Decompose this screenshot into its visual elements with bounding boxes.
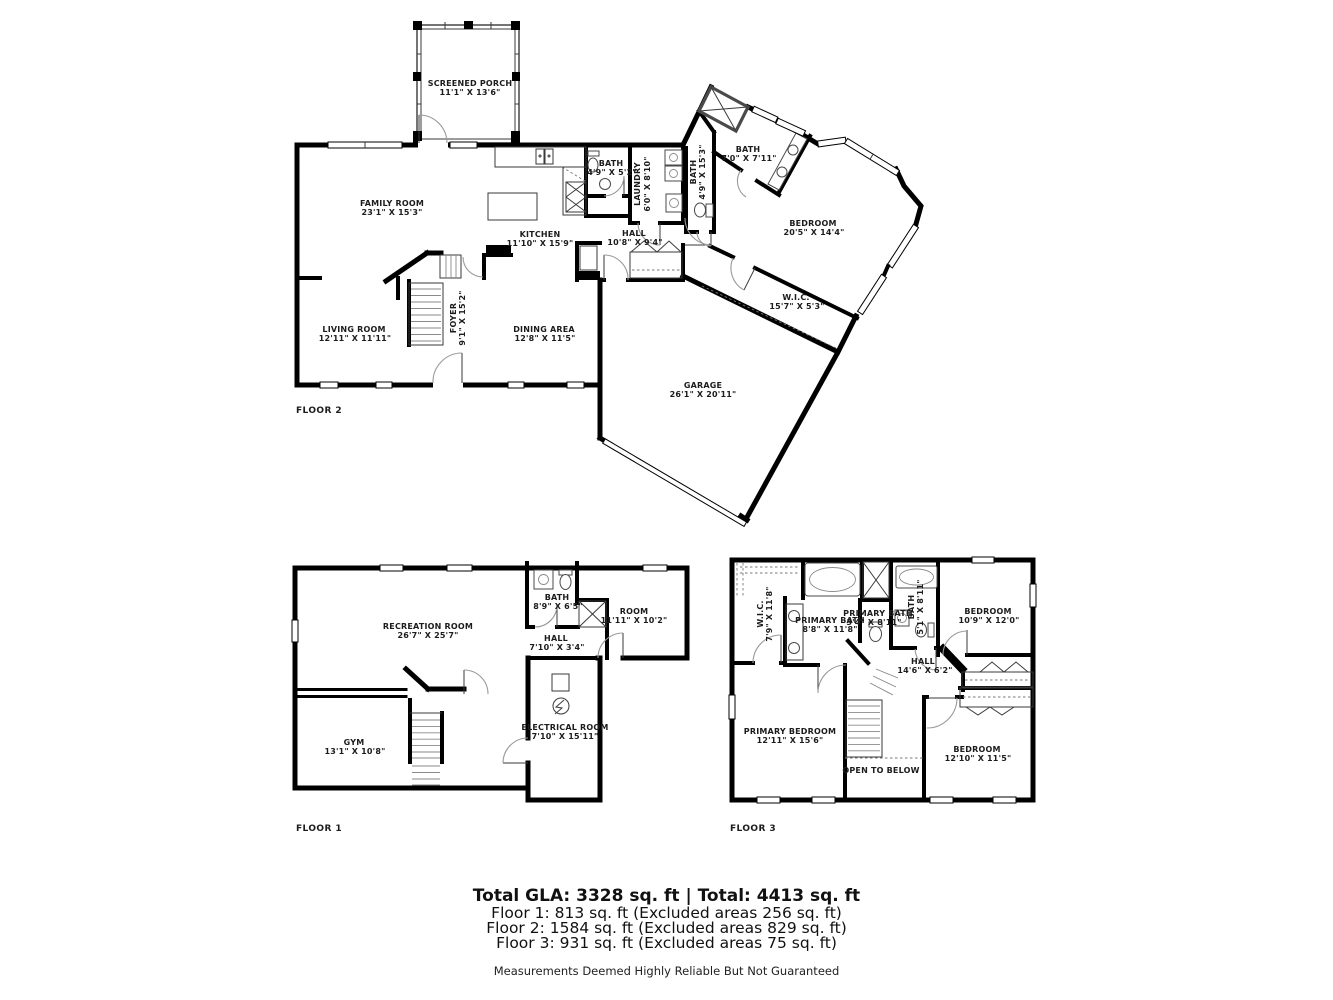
total-gla-line: Total GLA: 3328 sq. ft | Total: 4413 sq.…	[0, 886, 1333, 906]
floor1-outer-walls	[295, 568, 687, 800]
svg-text:FAMILY ROOM: FAMILY ROOM	[360, 199, 424, 208]
svg-text:9'1" X 15'2": 9'1" X 15'2"	[458, 290, 467, 345]
room-label-hall-f2: HALL 10'8" X 9'4"	[607, 229, 662, 247]
floor1-double-wall	[297, 690, 406, 697]
room-label-gym: GYM 13'1" X 10'8"	[325, 738, 386, 756]
svg-text:FOYER: FOYER	[449, 303, 458, 333]
room-label-wic-f3: W.I.C. 7'9" X 11'8"	[756, 586, 774, 641]
room-label-bedroom-se: BEDROOM 12'10" X 11'5"	[945, 745, 1012, 763]
svg-text:ELECTRICAL ROOM: ELECTRICAL ROOM	[521, 723, 608, 732]
svg-text:HALL: HALL	[911, 657, 935, 666]
svg-text:3'4" X 8'11": 3'4" X 8'11"	[846, 618, 901, 627]
svg-text:DINING AREA: DINING AREA	[513, 325, 575, 334]
room-label-wic-f2: W.I.C. 15'7" X 5'3"	[769, 293, 824, 311]
svg-text:KITCHEN: KITCHEN	[520, 230, 561, 239]
room-name: SCREENED PORCH	[428, 79, 513, 88]
svg-text:HALL: HALL	[544, 634, 568, 643]
floor-2-plan: SCREENED PORCH 11'1" X 13'6" FAMILY ROOM…	[296, 21, 921, 526]
room-label-bedroom-f2: BEDROOM 20'5" X 14'4"	[784, 219, 845, 237]
room-label-bath-strip: BATH 4'9" X 15'3"	[689, 144, 707, 199]
room-label-garage: GARAGE 26'1" X 20'11"	[670, 381, 737, 399]
room-label-recreation-room: RECREATION ROOM 26'7" X 25'7"	[383, 622, 473, 640]
svg-text:12'8" X 11'5": 12'8" X 11'5"	[515, 334, 576, 343]
svg-text:13'1" X 10'8": 13'1" X 10'8"	[325, 747, 386, 756]
room-label-hall-f1: HALL 7'10" X 3'4"	[529, 634, 584, 652]
room-label-family-room: FAMILY ROOM 23'1" X 15'3"	[360, 199, 424, 217]
svg-text:PRIMARY BATH: PRIMARY BATH	[843, 609, 913, 618]
room-label-dining-area: DINING AREA 12'8" X 11'5"	[513, 325, 575, 343]
room-label-bath-upper: BATH 7'0" X 7'11"	[721, 145, 776, 163]
svg-text:LIVING ROOM: LIVING ROOM	[322, 325, 385, 334]
floor-3-plan: W.I.C. 7'9" X 11'8" PRIMARY BATH 8'8" X …	[729, 557, 1036, 834]
svg-text:ROOM: ROOM	[620, 607, 649, 616]
room-label-laundry: LAUNDRY 6'0" X 8'10"	[633, 156, 652, 211]
floor-2-label: FLOOR 2	[296, 406, 342, 416]
floor3-area-line: Floor 3: 931 sq. ft (Excluded areas 75 s…	[0, 936, 1333, 951]
svg-text:RECREATION ROOM: RECREATION ROOM	[383, 622, 473, 631]
svg-text:7'9" X 11'8": 7'9" X 11'8"	[765, 586, 774, 641]
room-label-hall-f3: HALL 14'6" X 6'2"	[897, 657, 952, 675]
svg-text:LAUNDRY: LAUNDRY	[633, 162, 642, 206]
svg-text:BATH: BATH	[907, 595, 916, 620]
svg-text:5'1" X 8'11": 5'1" X 8'11"	[916, 579, 925, 634]
svg-text:6'0" X 8'10": 6'0" X 8'10"	[643, 156, 652, 211]
svg-text:4'9" X 5'2": 4'9" X 5'2"	[587, 168, 636, 177]
disclaimer-line: Measurements Deemed Highly Reliable But …	[0, 964, 1333, 978]
room-label-living-room: LIVING ROOM 12'11" X 11'11"	[319, 325, 392, 343]
floor-1-label: FLOOR 1	[296, 824, 342, 834]
svg-text:BATH: BATH	[545, 593, 570, 602]
svg-text:GARAGE: GARAGE	[684, 381, 722, 390]
svg-text:BATH: BATH	[689, 160, 698, 185]
room-label-room-f1: ROOM 11'11" X 10'2"	[601, 607, 668, 625]
room-label-kitchen: KITCHEN 11'10" X 15'9"	[507, 230, 574, 248]
svg-text:15'7" X 5'3": 15'7" X 5'3"	[769, 302, 824, 311]
svg-text:12'11" X 15'6": 12'11" X 15'6"	[757, 736, 824, 745]
svg-text:26'1" X 20'11": 26'1" X 20'11"	[670, 390, 737, 399]
room-label-screened-porch: SCREENED PORCH 11'1" X 13'6"	[428, 79, 513, 97]
svg-text:7'10" X 15'11": 7'10" X 15'11"	[532, 732, 599, 741]
floor1-stairs	[410, 713, 442, 785]
svg-text:GYM: GYM	[344, 738, 365, 747]
svg-text:BEDROOM: BEDROOM	[953, 745, 1000, 754]
room-label-bedroom-ne: BEDROOM 10'9" X 12'0"	[959, 607, 1020, 625]
svg-text:PRIMARY BEDROOM: PRIMARY BEDROOM	[744, 727, 836, 736]
svg-text:7'0" X 7'11": 7'0" X 7'11"	[721, 154, 776, 163]
area-summary: Total GLA: 3328 sq. ft | Total: 4413 sq.…	[0, 886, 1333, 978]
floor3-outer-walls	[732, 560, 1033, 800]
svg-text:20'5" X 14'4": 20'5" X 14'4"	[784, 228, 845, 237]
svg-text:BATH: BATH	[599, 159, 624, 168]
svg-text:12'11" X 11'11": 12'11" X 11'11"	[319, 334, 392, 343]
svg-text:W.I.C.: W.I.C.	[756, 600, 765, 627]
room-label-open-to-below: OPEN TO BELOW	[842, 766, 919, 775]
floor-3-label: FLOOR 3	[730, 824, 776, 834]
svg-text:23'1" X 15'3": 23'1" X 15'3"	[362, 208, 423, 217]
floor3-stairs	[845, 669, 924, 758]
floor-1-plan: RECREATION ROOM 26'7" X 25'7" BATH 8'9" …	[292, 563, 687, 834]
floorplan-page: SCREENED PORCH 11'1" X 13'6" FAMILY ROOM…	[0, 0, 1333, 1000]
svg-text:10'8" X 9'4": 10'8" X 9'4"	[607, 238, 662, 247]
floorplan-canvas: SCREENED PORCH 11'1" X 13'6" FAMILY ROOM…	[0, 0, 1333, 1000]
svg-text:8'9" X 6'5": 8'9" X 6'5"	[533, 602, 582, 611]
kitchen-island	[488, 193, 537, 220]
svg-text:W.I.C.: W.I.C.	[782, 293, 809, 302]
room-label-electrical-room: ELECTRICAL ROOM 7'10" X 15'11"	[521, 723, 608, 741]
svg-text:BEDROOM: BEDROOM	[789, 219, 836, 228]
floor1-windows	[292, 565, 667, 642]
svg-text:11'10" X 15'9": 11'10" X 15'9"	[507, 239, 574, 248]
svg-text:4'9" X 15'3": 4'9" X 15'3"	[698, 144, 707, 199]
electrical-symbols	[552, 674, 569, 714]
svg-text:11'11" X 10'2": 11'11" X 10'2"	[601, 616, 668, 625]
svg-text:12'10" X 11'5": 12'10" X 11'5"	[945, 754, 1012, 763]
svg-text:BATH: BATH	[736, 145, 761, 154]
room-label-foyer: FOYER 9'1" X 15'2"	[449, 290, 467, 345]
room-label-primary-bedroom: PRIMARY BEDROOM 12'11" X 15'6"	[744, 727, 836, 745]
svg-text:BEDROOM: BEDROOM	[964, 607, 1011, 616]
svg-text:7'10" X 3'4": 7'10" X 3'4"	[529, 643, 584, 652]
svg-text:HALL: HALL	[622, 229, 646, 238]
svg-text:26'7" X 25'7": 26'7" X 25'7"	[398, 631, 459, 640]
room-dims: 11'1" X 13'6"	[440, 88, 501, 97]
floor3-closets	[960, 662, 1033, 715]
svg-text:10'9" X 12'0": 10'9" X 12'0"	[959, 616, 1020, 625]
svg-text:14'6" X 6'2": 14'6" X 6'2"	[897, 666, 952, 675]
